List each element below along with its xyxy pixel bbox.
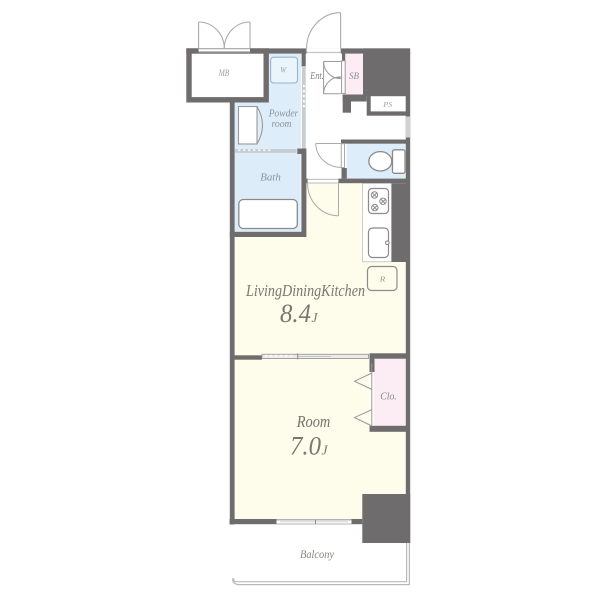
svg-text:Powder: Powder — [268, 109, 299, 120]
svg-text:J: J — [312, 311, 319, 326]
svg-text:PS: PS — [382, 100, 392, 109]
svg-text:Room: Room — [296, 412, 330, 431]
svg-text:7.0: 7.0 — [290, 432, 321, 461]
svg-text:SB: SB — [349, 72, 359, 82]
svg-text:room: room — [272, 119, 292, 130]
svg-text:W: W — [280, 65, 287, 75]
svg-text:Clo.: Clo. — [380, 392, 397, 403]
svg-text:J: J — [322, 444, 329, 459]
svg-text:MB: MB — [218, 69, 229, 79]
svg-text:LivingDiningKitchen: LivingDiningKitchen — [245, 281, 365, 300]
svg-text:Balcony: Balcony — [300, 547, 335, 561]
svg-text:R: R — [379, 275, 386, 284]
svg-text:Ent.: Ent. — [309, 71, 323, 82]
svg-text:8.4: 8.4 — [280, 299, 311, 328]
svg-text:Bath: Bath — [260, 173, 281, 184]
